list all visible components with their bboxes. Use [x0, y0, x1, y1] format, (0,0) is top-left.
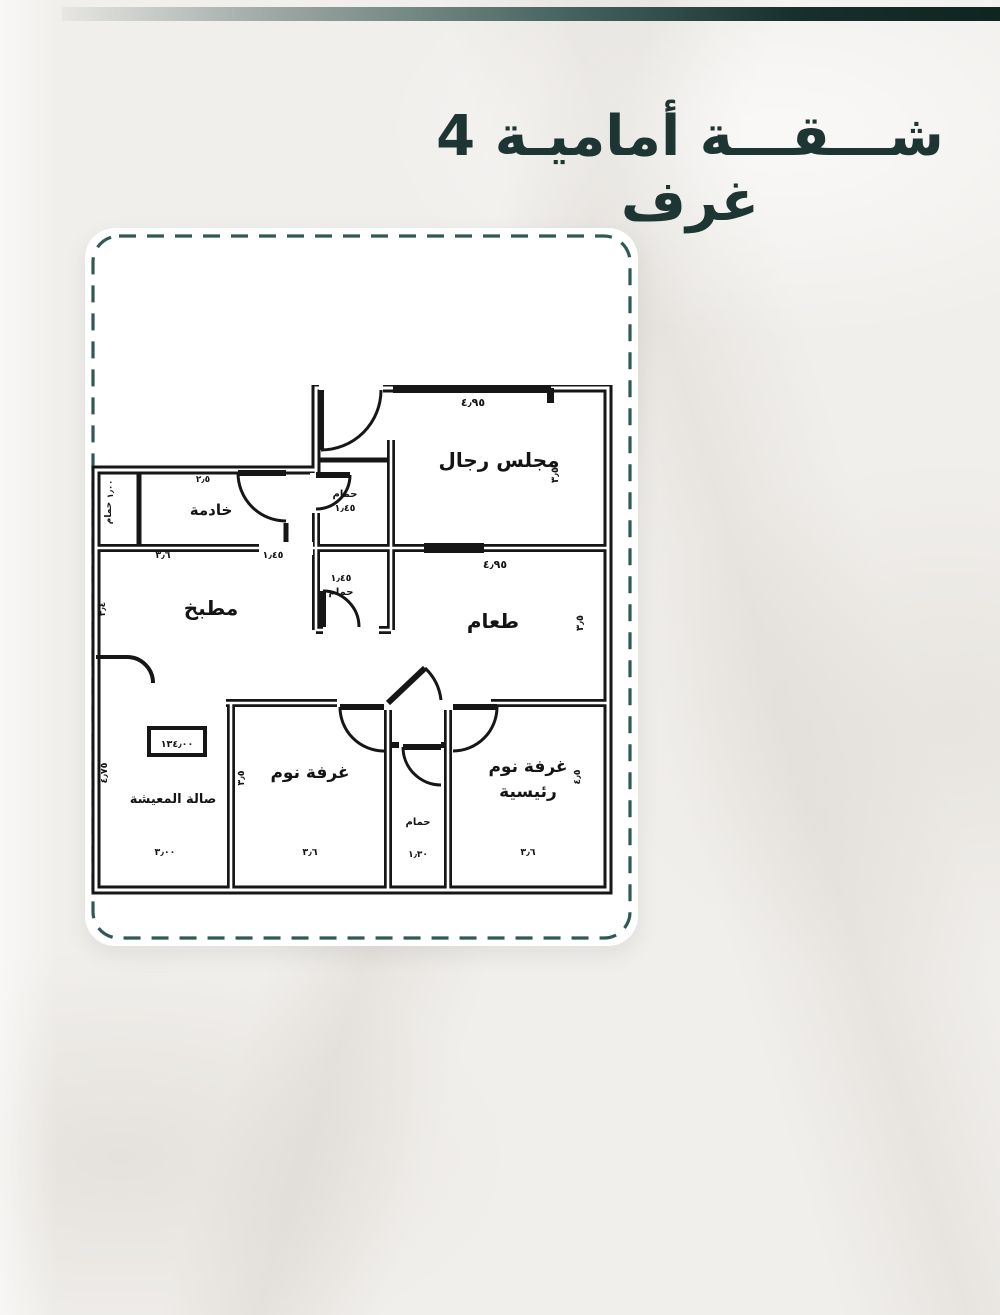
label-dining: طعام [467, 609, 519, 633]
label-maid: خادمة [190, 501, 233, 519]
dim-maid-bath: ١٫٠٠ [106, 480, 116, 499]
label-bath-2: حمام [329, 587, 354, 598]
label-bath-1: حمام [333, 489, 358, 500]
plan-area-box-value: ١٣٤٫٠٠ [161, 739, 194, 750]
dim-hall-gap: ١٫٤٥ [263, 550, 284, 561]
dim-bedroom-bottom: ٣٫٦ [302, 847, 317, 858]
dim-divider: ٤٫٩٥ [483, 558, 508, 571]
dim-majlis-right: ٣٫٥ [550, 467, 561, 483]
dim-living-left: ٤٫٧٥ [99, 762, 110, 783]
flyer-root: شـــقـــة أماميـة 4 غرف [0, 0, 1000, 1315]
label-majlis: مجلس رجال [439, 448, 560, 472]
dim-master-right: ٤٫٥ [572, 769, 583, 784]
dim-master-bottom: ٣٫٦ [520, 847, 535, 858]
label-master-1: غرفة نوم [488, 757, 567, 777]
label-bath-3: حمام [406, 817, 431, 828]
dim-majlis-top: ٤٫٩٥ [461, 396, 486, 409]
label-bedroom: غرفة نوم [270, 763, 349, 783]
top-accent-bar [62, 7, 1000, 21]
label-living: صالة المعيشة [130, 792, 217, 807]
dim-living-bottom: ٣٫٠٠ [155, 847, 176, 858]
dim-bath1: ١٫٤٥ [335, 503, 356, 514]
price-section: 399,000 sa.aqar.fm مســـاحـــة 134.00 [0, 940, 1000, 1315]
label-bath-maid: حمام [104, 502, 114, 525]
dim-bedroom-left: ٣٫٥ [236, 770, 247, 785]
label-master-2: رئيسية [499, 782, 557, 802]
floorplan-card: مجلس رجال خادمة مطبخ طعام صالة المعيشة غ… [85, 228, 638, 946]
dim-maid-top: ٢٫٥ [196, 475, 210, 485]
dim-kitchen-left: ٣٫٤ [98, 602, 108, 616]
dim-bath2: ١٫٤٥ [331, 573, 352, 584]
floorplan-svg: مجلس رجال خادمة مطبخ طعام صالة المعيشة غ… [91, 385, 616, 900]
dim-maid-bottom: ٣٫٦ [155, 550, 170, 561]
dim-bath3-bottom: ١٫٣٠ [408, 850, 428, 860]
label-kitchen: مطبخ [184, 596, 238, 620]
dim-dining-right: ٣٫٥ [575, 615, 586, 631]
page-title: شـــقـــة أماميـة 4 غرف [408, 104, 972, 234]
